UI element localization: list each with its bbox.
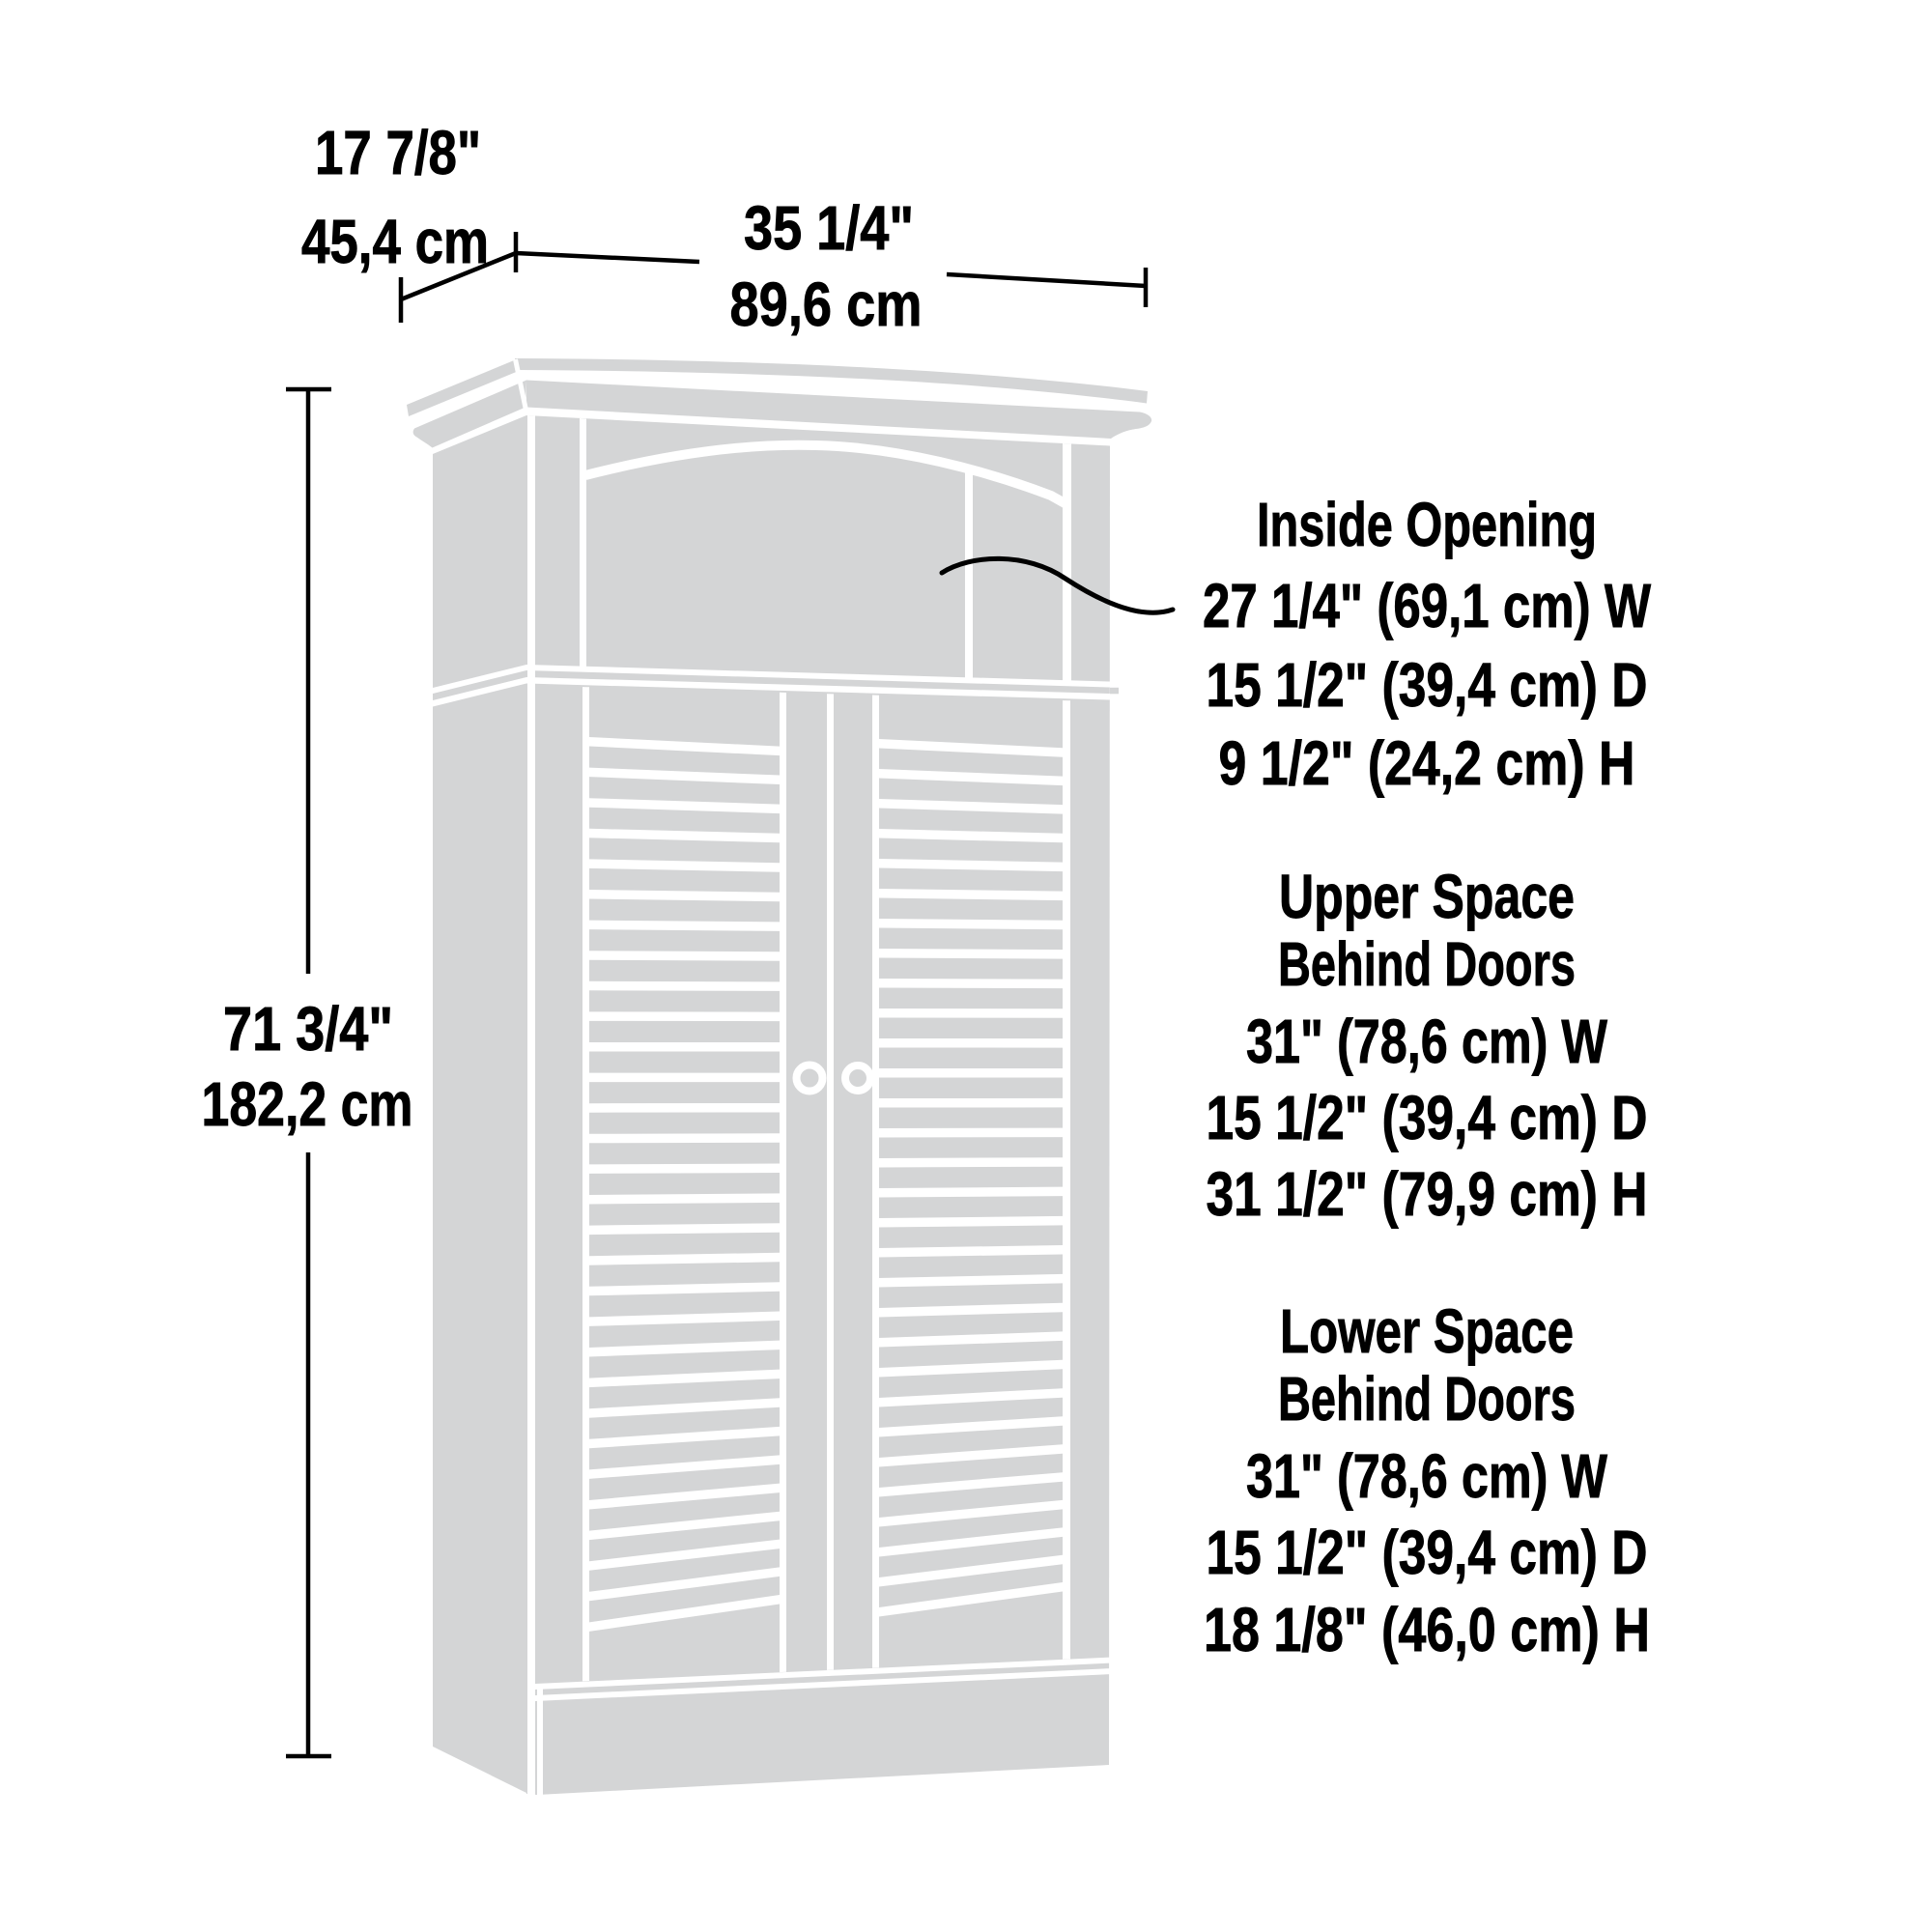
svg-text:17 7/8": 17 7/8" [315, 118, 481, 187]
svg-text:18 1/8" (46,0 cm) H: 18 1/8" (46,0 cm) H [1204, 1595, 1650, 1664]
svg-text:89,6 cm: 89,6 cm [730, 270, 923, 339]
svg-text:182,2 cm: 182,2 cm [202, 1069, 413, 1139]
svg-text:27 1/4" (69,1 cm) W: 27 1/4" (69,1 cm) W [1203, 571, 1651, 640]
svg-text:31 1/2" (79,9 cm) H: 31 1/2" (79,9 cm) H [1207, 1159, 1648, 1229]
svg-text:31" (78,6 cm) W: 31" (78,6 cm) W [1246, 1441, 1607, 1511]
svg-text:15 1/2" (39,4 cm) D: 15 1/2" (39,4 cm) D [1207, 650, 1648, 720]
svg-text:15 1/2" (39,4 cm) D: 15 1/2" (39,4 cm) D [1207, 1083, 1648, 1152]
svg-text:15 1/2" (39,4 cm) D: 15 1/2" (39,4 cm) D [1207, 1518, 1648, 1587]
svg-text:Inside Opening: Inside Opening [1257, 490, 1597, 559]
svg-text:9 1/2" (24,2 cm) H: 9 1/2" (24,2 cm) H [1219, 728, 1635, 798]
svg-text:Behind Doors: Behind Doors [1278, 1364, 1576, 1434]
svg-text:Behind Doors: Behind Doors [1278, 929, 1576, 999]
svg-text:71 3/4": 71 3/4" [223, 994, 393, 1064]
svg-text:Lower Space: Lower Space [1280, 1296, 1574, 1366]
svg-text:Upper Space: Upper Space [1279, 862, 1575, 931]
svg-text:35 1/4": 35 1/4" [744, 193, 914, 263]
svg-text:45,4 cm: 45,4 cm [301, 207, 489, 276]
svg-text:31" (78,6 cm) W: 31" (78,6 cm) W [1246, 1007, 1607, 1076]
